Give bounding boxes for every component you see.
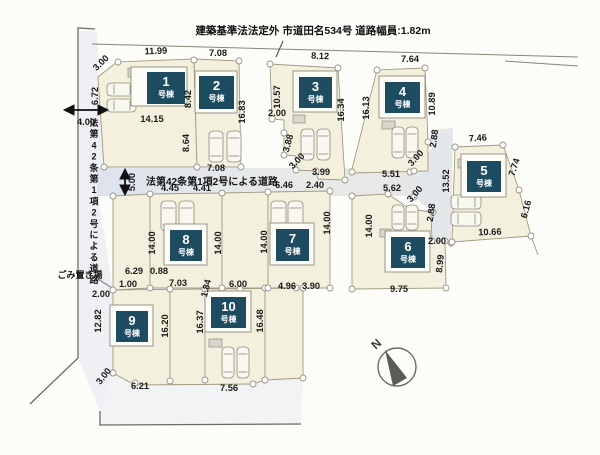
building-suffix: 号棟 [476,178,493,188]
dimension-label: 5.62 [383,183,401,193]
survey-point [236,58,242,64]
survey-point [422,65,428,71]
building-lot-5: 5号棟 [461,154,506,197]
survey-point [300,375,306,381]
building-lot-6: 6号棟 [385,231,430,272]
porch-lot10 [209,339,222,347]
survey-point [238,164,244,170]
site-plan-drawing: 1号棟2号棟3号棟4号棟5号棟8号棟7号棟6号棟9号棟10号棟 3.0011.9… [0,0,600,455]
building-number: 8 [182,232,189,247]
survey-point [500,142,506,148]
building-number: 10 [221,299,235,314]
dimension-label: 16.20 [160,314,170,337]
survey-point [335,65,341,71]
survey-point [265,285,271,291]
survey-point [167,378,173,384]
car-icon [209,131,223,162]
survey-point [202,377,208,383]
compass-needle [385,350,407,386]
building-lot-10: 10号棟 [205,291,251,332]
dimension-label: 1.00 [119,279,137,289]
building-suffix: 号棟 [209,93,226,103]
building-suffix: 号棟 [395,99,412,109]
survey-point [349,286,355,292]
dimension-label: 8.12 [311,51,329,62]
building-suffix: 号棟 [221,314,238,324]
dimension-label: 7.08 [207,163,225,173]
survey-point [147,285,153,291]
survey-point [265,189,271,195]
survey-point [110,193,116,199]
survey-point [327,285,333,291]
dimension-label: 0.88 [150,266,168,276]
dimension-label: 9.75 [390,284,408,294]
survey-point [262,377,268,383]
building-lot-8: 8号棟 [164,224,207,265]
building-lot-3: 3号棟 [293,71,337,112]
dimension-label: 14.00 [322,211,332,234]
dimension-label: 2.00 [268,108,286,118]
dimension-label: 7.46 [468,132,487,143]
car-icon [222,347,234,378]
porch-lot3 [293,115,305,123]
building-number: 3 [312,79,319,94]
dimension-label: 14.00 [147,231,157,254]
building-suffix: 号棟 [178,247,195,257]
building-number: 7 [289,231,296,246]
north-label: N [368,336,384,352]
dimension-label: 7.08 [209,48,227,58]
dimension-label: 10.66 [478,227,502,238]
dimension-label: 14.15 [140,114,163,124]
car-icon [406,205,418,230]
building-suffix: 号棟 [158,89,175,99]
dimension-label: 8.64 [181,133,191,152]
site-plan-canvas: 1号棟2号棟3号棟4号棟5号棟8号棟7号棟6号棟9号棟10号棟 3.0011.9… [0,0,600,455]
survey-point [374,67,380,73]
building-suffix: 号棟 [124,328,141,338]
survey-point [267,61,273,67]
car-icon [227,131,241,162]
dimension-label: 8.42 [183,90,193,108]
dimension-label: 10.57 [272,85,282,108]
car-icon [392,205,404,230]
dimension-label: 5.51 [382,169,400,179]
dimension-label: 7.64 [401,54,420,64]
dimension-label: 7.56 [220,383,238,393]
building-lot-1: 1号棟 [131,67,187,106]
garbage-area-label: ごみ置き場 [57,269,102,280]
building-number: 5 [480,163,487,178]
building-suffix: 号棟 [308,94,325,104]
dimension-label: 14.00 [213,231,223,254]
car-icon [392,127,404,158]
dimension-label: 6.21 [131,381,149,391]
building-number: 9 [128,313,135,328]
survey-point [194,164,200,170]
survey-point [147,191,153,197]
building-number: 1 [162,74,169,89]
dimension-label: 16.34 [336,98,346,122]
dimension-label: 16.13 [361,96,371,119]
building-number: 4 [399,84,407,99]
dimension-label: 2.00 [428,236,446,246]
dimension-label: 14.00 [259,230,269,253]
building-lot-4: 4号棟 [379,76,425,118]
survey-point [443,285,449,291]
arrow-4m-left-head [64,105,74,115]
dimension-label: 4.96 [278,281,296,291]
survey-point [411,168,417,174]
dimension-label: 7.03 [169,278,187,288]
dimension-label: 8.99 [434,254,446,273]
dimension-label: 14.00 [364,214,374,237]
dimension-label: 2.40 [306,180,324,190]
survey-point [449,239,455,245]
survey-point [250,381,256,387]
dimension-label: 3.90 [302,281,320,291]
dimension-label: 2.00 [92,289,110,299]
dimension-label: 6.29 [125,266,143,276]
survey-point [349,193,355,199]
building-number: 6 [404,239,411,254]
dimension-label: 7.74 [507,156,522,177]
survey-point [516,187,522,193]
dimension-label: 13.52 [441,169,451,192]
survey-point [115,59,121,65]
survey-point [191,57,197,63]
car-icon [451,212,481,226]
car-icon [317,129,330,160]
dimension-label: 16.83 [237,100,247,123]
building-suffix: 号棟 [400,254,417,264]
dimension-label: 12.82 [93,309,103,332]
dimension-label: 11.99 [144,46,167,57]
building-lot-9: 9号棟 [110,305,153,346]
survey-point [349,169,355,175]
survey-point [528,233,534,239]
dimension-label: 16.37 [195,310,205,333]
dimension-label: 16.48 [255,309,265,332]
building-lot-2: 2号棟 [195,71,237,113]
dimension-label: 6.00 [229,279,247,289]
dimension-label: 3.99 [312,167,330,177]
survey-point [452,144,458,150]
survey-point [219,190,225,196]
car-icon [237,347,249,378]
top-road-title: 建築基準法法定外 市道田名534号 道路幅員:1.82m [194,24,430,37]
survey-point [101,164,107,170]
survey-point [110,287,116,293]
survey-point [342,177,348,183]
dimension-label: 10.89 [427,92,437,115]
middle-road-label: 法第42条第1項2号による道路 [146,175,279,188]
survey-point [219,285,225,291]
north-compass-icon: N [368,336,416,386]
building-lot-7: 7号棟 [270,223,314,265]
dimension-label: 6.72 [90,87,100,105]
building-number: 2 [213,78,220,93]
survey-point [327,188,333,194]
building-suffix: 号棟 [285,246,302,256]
